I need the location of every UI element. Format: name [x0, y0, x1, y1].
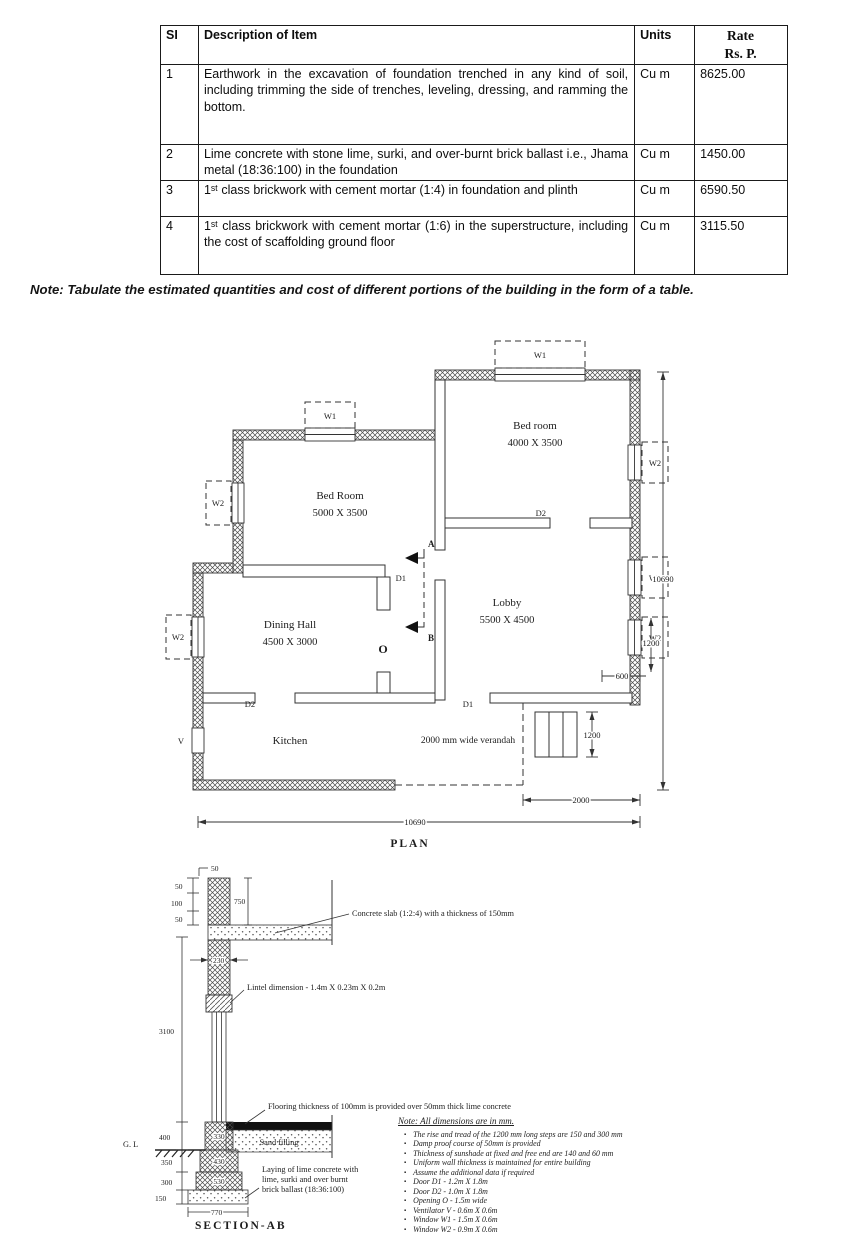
opening-label-o: O	[378, 642, 387, 656]
cell-rate: 6590.50	[695, 180, 788, 216]
room-lobby-size: 5500 X 4500	[480, 615, 535, 626]
cell-rate: 1450.00	[695, 144, 788, 180]
dim-step-330: 330	[213, 1132, 225, 1141]
section-title: SECTION-AB	[195, 1220, 287, 1232]
dim-300: 300	[161, 1178, 173, 1187]
table-header-row: SI Description of Item Units Rate Rs. P.	[161, 26, 788, 65]
section-marker-a: A	[428, 539, 435, 549]
dim-window-1200: 1200	[643, 638, 660, 648]
floor-plan-drawing: W1 W1 W2 W2 W2 W2 W2 V D2 D1 D2 D1 O	[130, 335, 690, 850]
tabulate-note: Note: Tabulate the estimated quantities …	[30, 282, 830, 297]
section-floor	[226, 1115, 332, 1158]
note-item: Uniform wall thickness is maintained for…	[404, 1159, 843, 1167]
dim-750: 750	[234, 897, 246, 906]
section-line-ab: A B	[405, 539, 435, 643]
dim-step-530: 530	[213, 1177, 225, 1186]
note-item: Ventilator V - 0.6m X 0.6m	[404, 1207, 843, 1215]
cell-si: 1	[161, 64, 199, 144]
door-label-d2: D2	[245, 699, 255, 709]
laying-annotation-line1: Laying of lime concrete with	[262, 1165, 359, 1174]
table-row: 4 1ˢᵗ class brickwork with cement mortar…	[161, 216, 788, 274]
rate-table: SI Description of Item Units Rate Rs. P.…	[160, 25, 788, 275]
dim-bed-770: 770	[211, 1208, 223, 1217]
dim-100: 100	[171, 899, 183, 908]
header-description: Description of Item	[198, 26, 634, 65]
dim-steps-1200: 1200	[584, 730, 601, 740]
room-dining-size: 4500 X 3000	[263, 637, 318, 648]
section-marker-b: B	[428, 633, 434, 643]
room-dining-name: Dining Hall	[264, 619, 316, 631]
table-row: 1 Earthwork in the excavation of foundat…	[161, 64, 788, 144]
room-bed2-size: 5000 X 3500	[313, 508, 368, 519]
cell-units: Cu m	[635, 144, 695, 180]
plan-title: PLAN	[390, 838, 429, 850]
table-row: 2 Lime concrete with stone lime, surki, …	[161, 144, 788, 180]
header-si: SI	[161, 26, 199, 65]
cell-units: Cu m	[635, 180, 695, 216]
section-notes-list: The rise and tread of the 1200 mm long s…	[398, 1131, 843, 1234]
note-item: Opening O - 1.5m wide	[404, 1197, 843, 1205]
window-label-w2: W2	[172, 632, 184, 642]
door-label-d1: D1	[396, 573, 406, 583]
note-item: Window W2 - 0.9m X 0.6m	[404, 1226, 843, 1234]
room-bed2-name: Bed Room	[316, 490, 364, 502]
room-bed1-name: Bed room	[513, 420, 557, 432]
document-page: SI Description of Item Units Rate Rs. P.…	[0, 0, 850, 1235]
cell-rate: 3115.50	[695, 216, 788, 274]
flooring-annotation: Flooring thickness of 100mm is provided …	[268, 1102, 511, 1111]
note-item: Assume the additional data if required	[404, 1169, 843, 1177]
dim-350: 350	[161, 1158, 173, 1167]
cell-description: 1ˢᵗ class brickwork with cement mortar (…	[198, 180, 634, 216]
dim-plinth-400: 400	[159, 1133, 171, 1142]
cell-description: Earthwork in the excavation of foundatio…	[198, 64, 634, 144]
room-lobby-name: Lobby	[493, 597, 522, 609]
note-item: Thickness of sunshade at fixed and free …	[404, 1150, 843, 1158]
header-units: Units	[635, 26, 695, 65]
section-notes-panel: Note: All dimensions are in mm. The rise…	[398, 1116, 843, 1235]
cell-units: Cu m	[635, 216, 695, 274]
cell-rate: 8625.00	[695, 64, 788, 144]
note-item: Damp proof course of 50mm is provided	[404, 1140, 843, 1148]
cell-description: Lime concrete with stone lime, surki, an…	[198, 144, 634, 180]
cell-description: 1ˢᵗ class brickwork with cement mortar (…	[198, 216, 634, 274]
door-label-d1: D1	[463, 699, 473, 709]
dim-wall-230: 230	[213, 956, 225, 965]
cell-si: 3	[161, 180, 199, 216]
note-item: The rise and tread of the 1200 mm long s…	[404, 1131, 843, 1139]
laying-annotation-line3: brick ballast (18:36:100)	[262, 1185, 344, 1194]
door-label-d2: D2	[536, 508, 546, 518]
section-wall	[190, 940, 248, 1122]
dim-step-430: 430	[213, 1157, 225, 1166]
cell-si: 2	[161, 144, 199, 180]
header-rate-line1: Rate	[700, 27, 781, 45]
dim-overall-width: 10690	[404, 817, 425, 827]
entrance-steps	[535, 712, 577, 757]
laying-annotation-line2: lime, surki and over burnt	[262, 1175, 349, 1184]
section-parapet	[187, 868, 332, 945]
note-item: Door D2 - 1.0m X 1.8m	[404, 1188, 843, 1196]
window-label-w1: W1	[534, 350, 546, 360]
note-item: Window W1 - 1.5m X 0.6m	[404, 1216, 843, 1224]
ground-level-label: G. L	[123, 1140, 138, 1149]
dim-height-3100: 3100	[159, 1027, 174, 1036]
plan-interior-walls	[203, 380, 632, 703]
cell-units: Cu m	[635, 64, 695, 144]
dim-offset-600: 600	[616, 671, 629, 681]
dim-overall-height: 10690	[652, 574, 673, 584]
room-kitchen-name: Kitchen	[273, 735, 308, 747]
window-label-w1: W1	[324, 411, 336, 421]
ventilator-label-v: V	[178, 736, 185, 746]
verandah-label: 2000 mm wide verandah	[421, 736, 515, 746]
sand-filling-label: Sand filling	[260, 1138, 299, 1147]
dim-50: 50	[175, 882, 183, 891]
dim-150: 150	[155, 1194, 167, 1203]
cell-si: 4	[161, 216, 199, 274]
dim-50-top: 50	[211, 864, 219, 873]
slab-annotation: Concrete slab (1:2:4) with a thickness o…	[352, 909, 515, 918]
foundation-step-dims: 330 430 530	[213, 1132, 225, 1186]
header-rate: Rate Rs. P.	[695, 26, 788, 65]
dim-50: 50	[175, 915, 183, 924]
table-row: 3 1ˢᵗ class brickwork with cement mortar…	[161, 180, 788, 216]
note-item: Door D1 - 1.2m X 1.8m	[404, 1178, 843, 1186]
section-notes-title: Note: All dimensions are in mm.	[398, 1116, 843, 1126]
room-bed1-size: 4000 X 3500	[508, 438, 563, 449]
window-label-w2: W2	[212, 498, 224, 508]
window-label-w2: W2	[649, 458, 661, 468]
dim-verandah-2000: 2000	[573, 795, 590, 805]
header-rate-line2: Rs. P.	[700, 45, 781, 63]
lintel-annotation: Lintel dimension - 1.4m X 0.23m X 0.2m	[247, 983, 386, 992]
